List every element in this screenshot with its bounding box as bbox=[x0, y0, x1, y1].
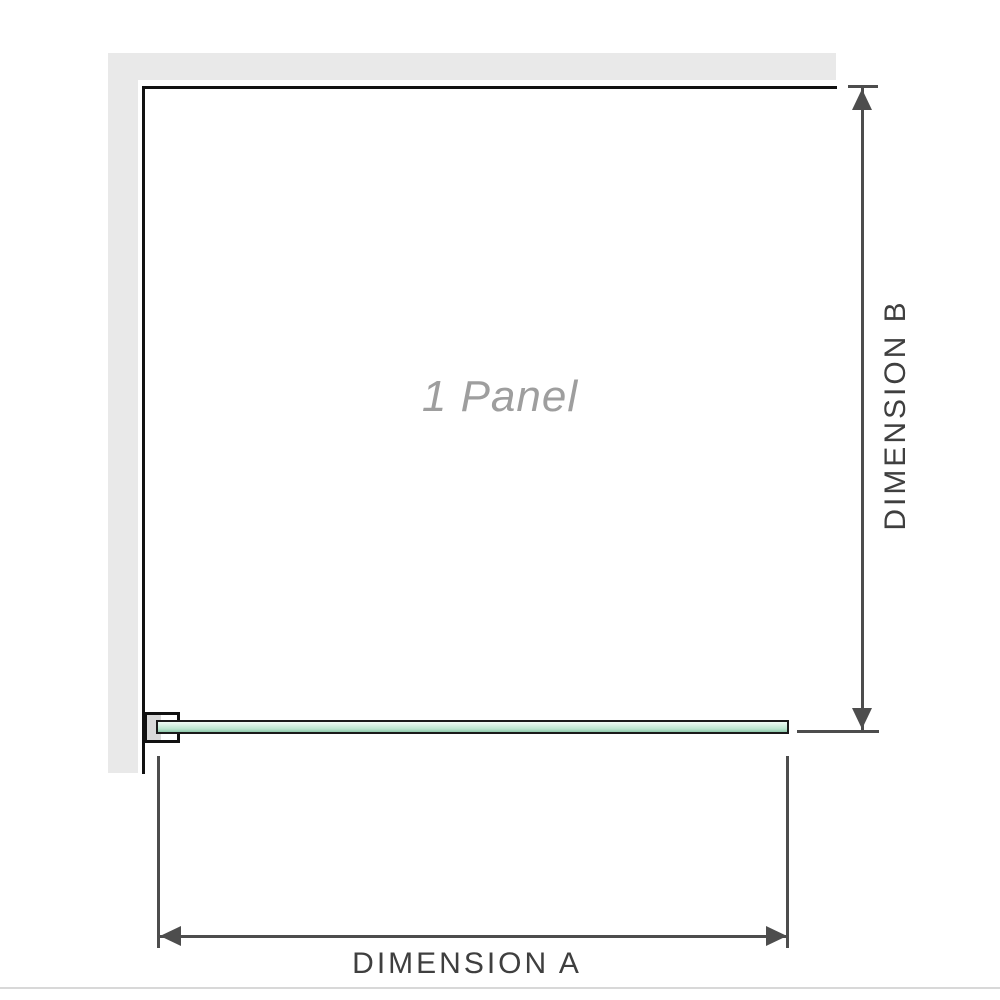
dimension-b-line bbox=[861, 88, 864, 732]
bottom-divider-line bbox=[0, 987, 1000, 989]
arrow-right-icon bbox=[766, 926, 787, 946]
panel-edge-left bbox=[142, 86, 145, 774]
panel-edge-top bbox=[142, 86, 837, 89]
dimension-a-line bbox=[160, 935, 787, 938]
dimension-a-extension-left bbox=[157, 756, 160, 948]
dimension-b-label: DIMENSION B bbox=[879, 299, 913, 530]
wall-segment-left bbox=[108, 53, 138, 773]
panel-label: 1 Panel bbox=[422, 372, 578, 422]
arrow-left-icon bbox=[160, 926, 181, 946]
arrow-down-icon bbox=[852, 708, 872, 729]
arrow-up-icon bbox=[852, 89, 872, 110]
wall-segment-top bbox=[108, 53, 836, 80]
glass-panel bbox=[156, 720, 789, 734]
dimension-a-label: DIMENSION A bbox=[352, 947, 582, 981]
dimension-b-cap-bottom bbox=[797, 730, 879, 733]
dimension-a-extension-right bbox=[786, 756, 789, 948]
panel-dimension-diagram: 1 Panel DIMENSION B DIMENSION A bbox=[0, 0, 1000, 1000]
